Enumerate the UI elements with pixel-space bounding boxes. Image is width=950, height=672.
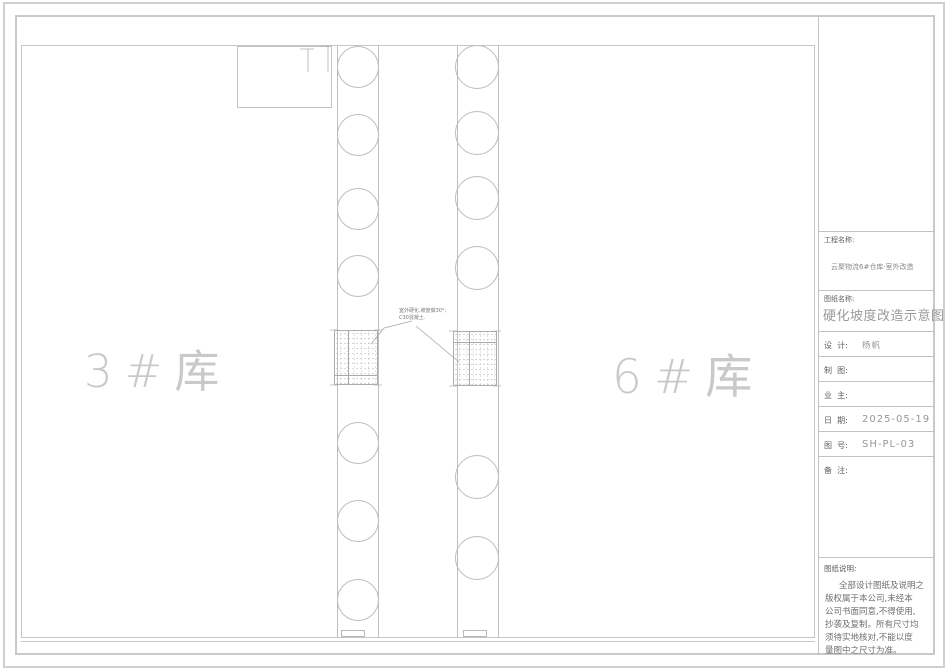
project-name-label: 工程名称:: [824, 235, 854, 245]
drawing-no-label: 图 号:: [824, 440, 848, 451]
drawing-title: 硬化坡度改造示意图: [823, 305, 945, 324]
titleblock-row-drawing-no: 图 号: SH-PL-03: [819, 431, 934, 456]
date-value: 2025-05-19: [862, 414, 930, 425]
pier-circle: [455, 111, 499, 155]
hatch-divider-line: [469, 332, 470, 385]
pier-circle: [455, 246, 499, 290]
titleblock-row-drafter: 制 图:: [819, 356, 934, 381]
owner-label: 业 主:: [824, 390, 848, 401]
pier-circle: [455, 45, 499, 89]
remarks-label: 备 注:: [824, 465, 848, 476]
designer-label: 设 计:: [824, 340, 848, 351]
drawing-name-section: 图纸名称: 硬化坡度改造示意图: [819, 290, 934, 331]
titleblock-row-owner: 业 主:: [819, 381, 934, 406]
notes-body: 全部设计图纸及说明之 版权属于本公司,未经本 公司书面同意,不得使用, 抄袭及复…: [825, 580, 924, 658]
column-base-pad: [463, 630, 487, 637]
slope-annotation-line2: C30混凝土.: [399, 315, 446, 322]
annex-room-outline: [237, 46, 332, 108]
drawing-sheet: 3#库 6#库 室外硬化,坡度做30°; C30混凝土. 工程名称: 云聚物流6…: [0, 0, 950, 672]
notes-line: 版权属于本公司,未经本: [825, 593, 924, 606]
pier-circle: [455, 536, 499, 580]
drawing-no-value: SH-PL-03: [862, 439, 915, 450]
drawing-bottom-line: [21, 641, 815, 642]
notes-line: 公司书面同意,不得使用,: [825, 606, 924, 619]
pier-circle: [337, 46, 379, 88]
warehouse-left-label: 3#库: [84, 335, 231, 400]
pier-circle: [455, 176, 499, 220]
slope-annotation-line1: 室外硬化,坡度做30°;: [399, 308, 446, 315]
pier-circle: [337, 114, 379, 156]
notes-line: 抄袭及复制。所有尺寸均: [825, 619, 924, 632]
pier-circle: [337, 579, 379, 621]
pier-circle: [455, 455, 499, 499]
pier-circle: [337, 422, 379, 464]
slope-annotation: 室外硬化,坡度做30°; C30混凝土.: [399, 308, 446, 322]
titleblock-row-date: 日 期: 2025-05-19: [819, 406, 934, 431]
designer-value: 杨帆: [862, 339, 881, 351]
pier-circle: [337, 188, 379, 230]
hatch-divider-line: [454, 342, 496, 343]
concrete-hatch-left: [334, 330, 378, 385]
hatch-divider-line: [348, 331, 349, 384]
notes-line: 全部设计图纸及说明之: [825, 580, 924, 593]
titleblock-row-remarks: 备 注:: [819, 456, 934, 557]
concrete-hatch-right: [453, 331, 497, 386]
hatch-divider-line: [335, 375, 377, 376]
project-name-value: 云聚物流6#仓库·室外改造: [831, 262, 914, 272]
pier-circle: [337, 255, 379, 297]
drawing-notes-section: 图纸说明: 全部设计图纸及说明之 版权属于本公司,未经本 公司书面同意,不得使用…: [819, 557, 934, 654]
drafter-label: 制 图:: [824, 365, 848, 376]
column-base-pad: [341, 630, 365, 637]
pier-circle: [337, 500, 379, 542]
title-block: 工程名称: 云聚物流6#仓库·室外改造 图纸名称: 硬化坡度改造示意图 设 计:…: [818, 16, 934, 654]
titleblock-row-designer: 设 计: 杨帆: [819, 331, 934, 356]
project-name-section: 工程名称: 云聚物流6#仓库·室外改造: [819, 231, 934, 290]
notes-line: 须待实地核对,不能以度: [825, 632, 924, 645]
date-label: 日 期:: [824, 415, 848, 426]
notes-line: 量图中之尺寸为准。: [825, 645, 924, 658]
drawing-name-label: 图纸名称:: [824, 294, 854, 304]
notes-label: 图纸说明:: [824, 563, 857, 574]
warehouse-right-label: 6#库: [612, 338, 764, 407]
